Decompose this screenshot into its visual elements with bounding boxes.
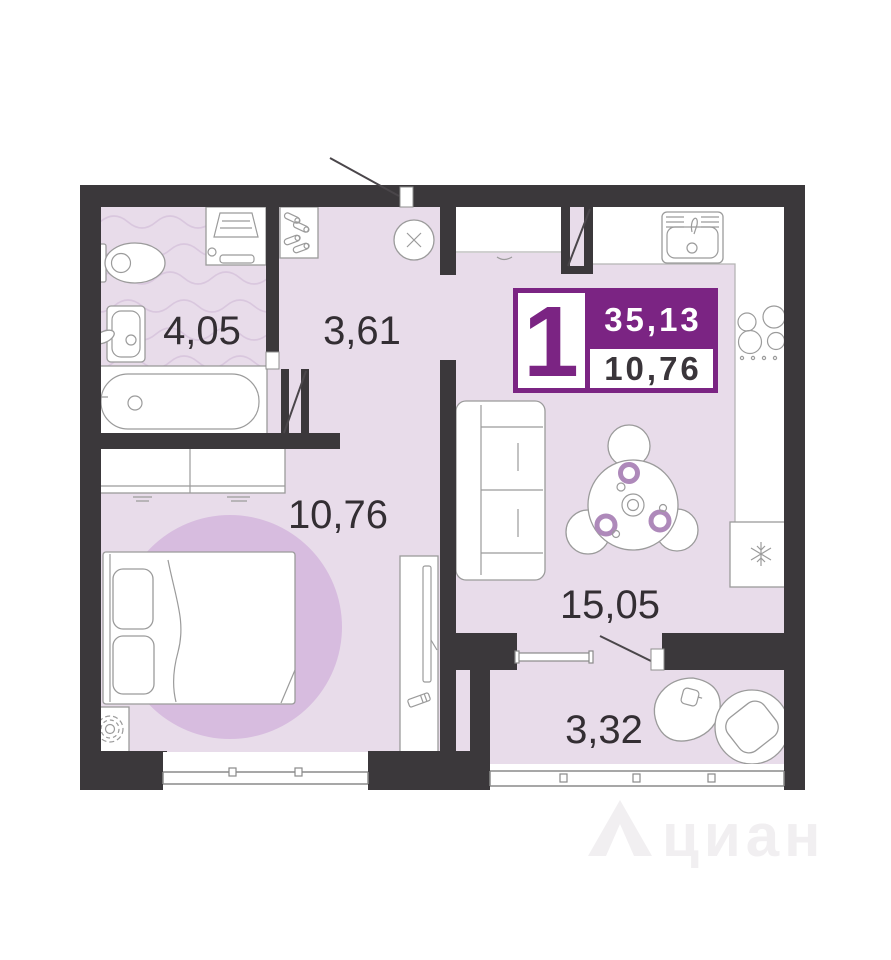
bedroom-area-label: 10,76 xyxy=(288,493,388,537)
tv-unit xyxy=(400,556,438,754)
kitchen-living-area-label: 15,05 xyxy=(560,583,660,627)
fridge xyxy=(730,522,793,587)
entry-closet xyxy=(455,205,561,260)
badge-living-area: 10,76 xyxy=(604,350,702,387)
house-icon xyxy=(588,800,652,856)
floorplan-page: 1 35,13 10,76 4,05 3,61 10,76 15,05 3,32… xyxy=(0,0,891,960)
floorplan-svg: 1 35,13 10,76 4,05 3,61 10,76 15,05 3,32… xyxy=(0,0,891,960)
bathtub xyxy=(92,366,267,437)
sofa xyxy=(456,401,545,580)
bathroom-area-label: 4,05 xyxy=(163,309,241,353)
hallway-area-label: 3,61 xyxy=(323,309,401,353)
badge-total-area: 35,13 xyxy=(604,301,702,338)
bedroom-window xyxy=(163,752,368,790)
shoe-rack xyxy=(280,207,318,258)
dining-table xyxy=(588,460,678,550)
living-room-window-radiator xyxy=(515,651,593,663)
balcony-armchair xyxy=(715,690,789,764)
balcony-glazing xyxy=(490,764,784,791)
watermark-text: циан xyxy=(662,802,825,869)
ceiling-light-icon xyxy=(394,220,434,260)
wardrobe xyxy=(95,448,285,501)
watermark: циан xyxy=(588,800,825,869)
kitchen-sink xyxy=(662,212,723,263)
badge-rooms-count: 1 xyxy=(523,286,579,398)
toilet xyxy=(90,243,165,283)
washing-machine xyxy=(206,207,266,265)
balcony-area-label: 3,32 xyxy=(565,708,643,752)
bed xyxy=(103,552,295,704)
area-badge: 1 35,13 10,76 xyxy=(513,286,718,398)
